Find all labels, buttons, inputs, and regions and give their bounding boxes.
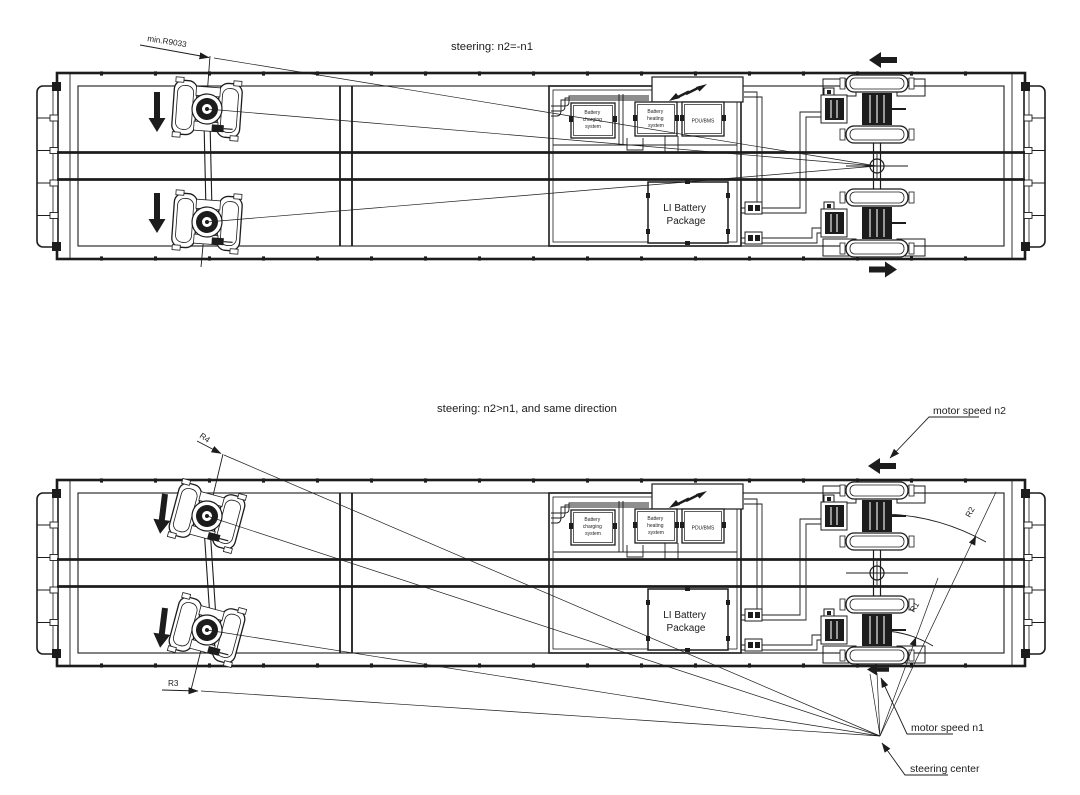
min-radius-callout: min.R9033 (140, 34, 209, 57)
motor-speed-n2-callout: motor speed n2 (890, 405, 1006, 458)
rear-bottom-direction-arrow (869, 262, 897, 278)
r3-label: R3 (168, 679, 179, 688)
rear-top-direction-arrow (869, 52, 897, 68)
rear-top-direction-arrow (868, 458, 896, 474)
steering-diagram-canvas: Battery charging system Battery heating … (0, 0, 1080, 795)
top-view: steering: n2=-n1 min.R9033 (37, 34, 1045, 277)
motor-speed-n1-callout: motor speed n1 (881, 678, 984, 734)
steering-center-label: steering center (910, 763, 980, 775)
motor-speed-n1-label: motor speed n1 (911, 722, 984, 734)
motor-speed-n2-label: motor speed n2 (933, 405, 1006, 417)
steering-center-callout: steering center (882, 743, 980, 775)
bottom-view: steering: n2>n1, and same direction (37, 403, 1045, 775)
bottom-view-title: steering: n2>n1, and same direction (437, 403, 617, 415)
drawing-sheet: Battery charging system Battery heating … (0, 0, 1080, 795)
top-view-title: steering: n2=-n1 (451, 41, 533, 53)
